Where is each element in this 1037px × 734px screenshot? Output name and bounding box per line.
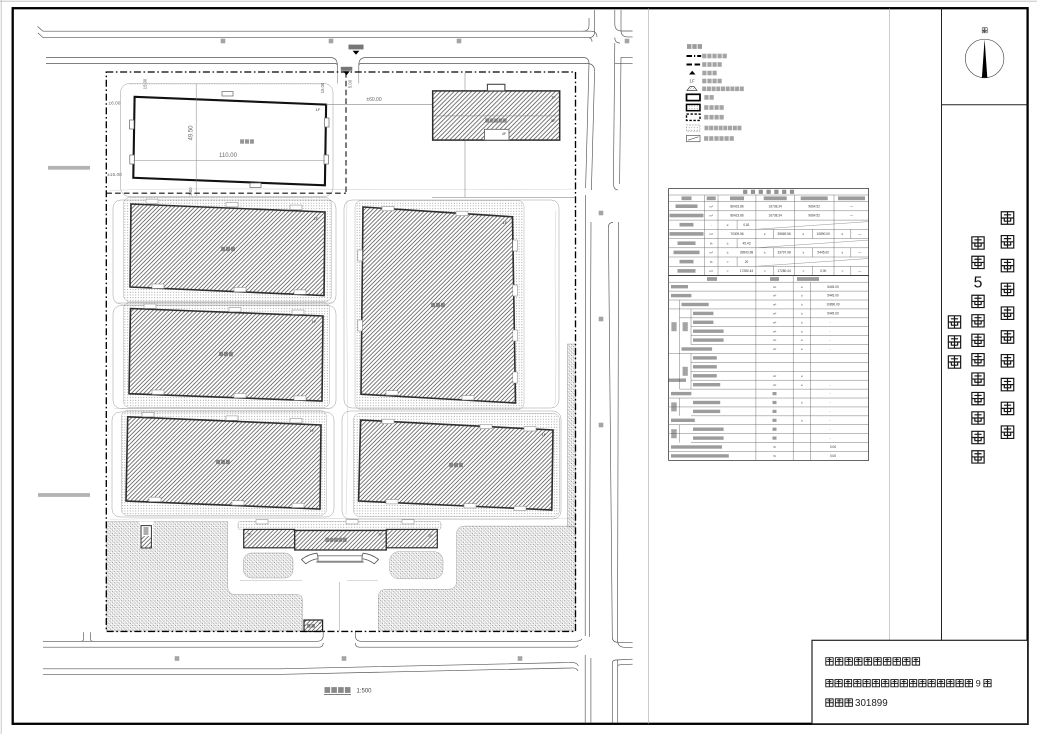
svg-text:-: - (829, 418, 830, 422)
svg-text:±60.00: ±60.00 (366, 97, 381, 103)
svg-text:33797.98: 33797.98 (777, 251, 791, 255)
svg-text:1F: 1F (689, 78, 695, 83)
svg-text:-: - (829, 383, 830, 387)
svg-text:±15.00: ±15.00 (107, 172, 122, 178)
svg-text:m²: m² (773, 303, 776, 307)
svg-text:m²: m² (709, 214, 713, 218)
svg-text:0.00: 0.00 (820, 269, 826, 273)
svg-text:1F: 1F (318, 621, 322, 625)
svg-text:≥: ≥ (842, 232, 844, 236)
svg-text:86423.86: 86423.86 (730, 204, 744, 208)
svg-text:m²: m² (709, 232, 713, 236)
svg-text:m²: m² (709, 269, 713, 273)
svg-text:70309.56: 70309.56 (730, 232, 744, 236)
svg-text:≥: ≥ (764, 232, 766, 236)
svg-text:%: % (710, 241, 713, 245)
svg-text:-: - (829, 427, 830, 431)
svg-text:1F: 1F (316, 107, 321, 112)
svg-text:m²: m² (709, 251, 713, 255)
svg-text:m²: m² (773, 285, 776, 289)
svg-text:5445.00: 5445.00 (827, 285, 839, 289)
svg-text:0.00: 0.00 (830, 454, 836, 458)
svg-text:≥: ≥ (727, 241, 729, 245)
svg-text:≥: ≥ (727, 223, 729, 227)
svg-text:10890.00: 10890.00 (826, 303, 840, 307)
svg-text:5445.00: 5445.00 (817, 251, 829, 255)
svg-text:%: % (710, 260, 713, 264)
svg-text:20: 20 (745, 260, 749, 264)
svg-text:=: = (727, 260, 729, 264)
svg-text:39669.56: 39669.56 (777, 232, 791, 236)
svg-text:m²: m² (773, 338, 776, 342)
svg-text:5445.00: 5445.00 (827, 311, 839, 315)
svg-text:m²: m² (773, 320, 776, 324)
svg-text:1F: 1F (310, 428, 315, 433)
svg-text:-: - (829, 347, 830, 351)
svg-text:1F: 1F (312, 319, 317, 324)
svg-text:16738.34: 16738.34 (769, 214, 783, 218)
svg-text:-: - (829, 392, 830, 396)
svg-text:15.00: 15.00 (320, 82, 325, 93)
svg-text:110.00: 110.00 (219, 153, 238, 159)
svg-text:86423.86: 86423.86 (730, 214, 744, 218)
svg-text:17280.44: 17280.44 (777, 269, 791, 273)
svg-text:1F: 1F (542, 432, 547, 437)
svg-text:-: - (829, 338, 830, 342)
svg-text:=: = (764, 269, 766, 273)
svg-text:2.00: 2.00 (188, 187, 193, 196)
svg-text:=: = (841, 269, 843, 273)
svg-text:≥: ≥ (764, 251, 766, 255)
svg-text:m²: m² (773, 329, 776, 333)
svg-text:-: - (829, 409, 830, 413)
svg-text:15.00: 15.00 (143, 78, 148, 89)
svg-text:-: - (829, 436, 830, 440)
svg-text:1F: 1F (551, 96, 556, 100)
svg-text:301899: 301899 (855, 698, 888, 709)
svg-text:5445.00: 5445.00 (827, 294, 839, 298)
svg-text:1:500: 1:500 (356, 688, 372, 694)
svg-text:-: - (829, 320, 830, 324)
svg-text:0.00: 0.00 (830, 445, 836, 449)
svg-text:5: 5 (974, 274, 983, 291)
svg-text:≥: ≥ (803, 232, 805, 236)
svg-text:45.43: 45.43 (743, 241, 751, 245)
svg-text:≥: ≥ (727, 251, 729, 255)
svg-text:-: - (829, 329, 830, 333)
svg-text:10890.00: 10890.00 (817, 232, 831, 236)
svg-text:m²: m² (709, 204, 713, 208)
svg-text:±6.00: ±6.00 (109, 101, 121, 107)
svg-text:=: = (802, 269, 804, 273)
svg-text:m²: m² (773, 383, 776, 387)
svg-text:≥: ≥ (803, 251, 805, 255)
svg-text:17280.44: 17280.44 (740, 269, 754, 273)
svg-text:39543.98: 39543.98 (740, 251, 754, 255)
svg-text:9: 9 (976, 678, 981, 688)
svg-text:m²: m² (773, 374, 776, 378)
svg-text:9664.52: 9664.52 (808, 204, 820, 208)
svg-text:m²: m² (773, 294, 776, 298)
svg-text:16738.34: 16738.34 (769, 204, 783, 208)
svg-text:-: - (711, 223, 712, 227)
svg-text:=: = (727, 269, 729, 273)
svg-text:≥: ≥ (842, 251, 844, 255)
svg-text:%: % (773, 454, 776, 458)
svg-text:5F: 5F (551, 119, 556, 123)
svg-text:9664.52: 9664.52 (808, 214, 820, 218)
svg-text:-: - (829, 401, 830, 405)
svg-text:m²: m² (773, 347, 776, 351)
svg-text:m²: m² (773, 311, 776, 315)
svg-text:0.81: 0.81 (743, 223, 749, 227)
svg-text:%: % (773, 445, 776, 449)
svg-text:5.00: 5.00 (348, 79, 353, 88)
svg-text:1F: 1F (314, 216, 319, 221)
svg-text:49.50: 49.50 (189, 125, 195, 141)
svg-text:1F: 1F (503, 220, 508, 225)
